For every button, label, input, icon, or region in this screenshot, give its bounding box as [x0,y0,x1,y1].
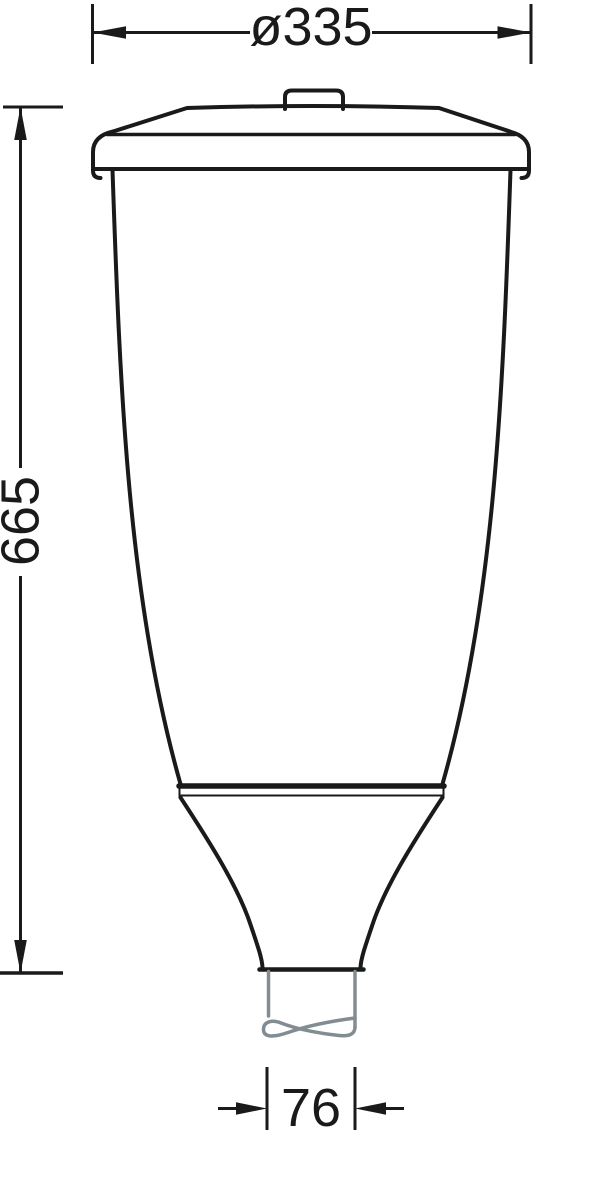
diameter-dimension-label: ø335 [249,0,372,57]
height-dimension-label: 665 [0,476,51,566]
drawing-background [0,0,606,1200]
spigot-dimension-label: 76 [281,1078,341,1138]
technical-drawing-canvas: ø335 665 76 [0,0,606,1200]
luminaire-dimension-drawing: ø335 665 76 [0,0,606,1200]
